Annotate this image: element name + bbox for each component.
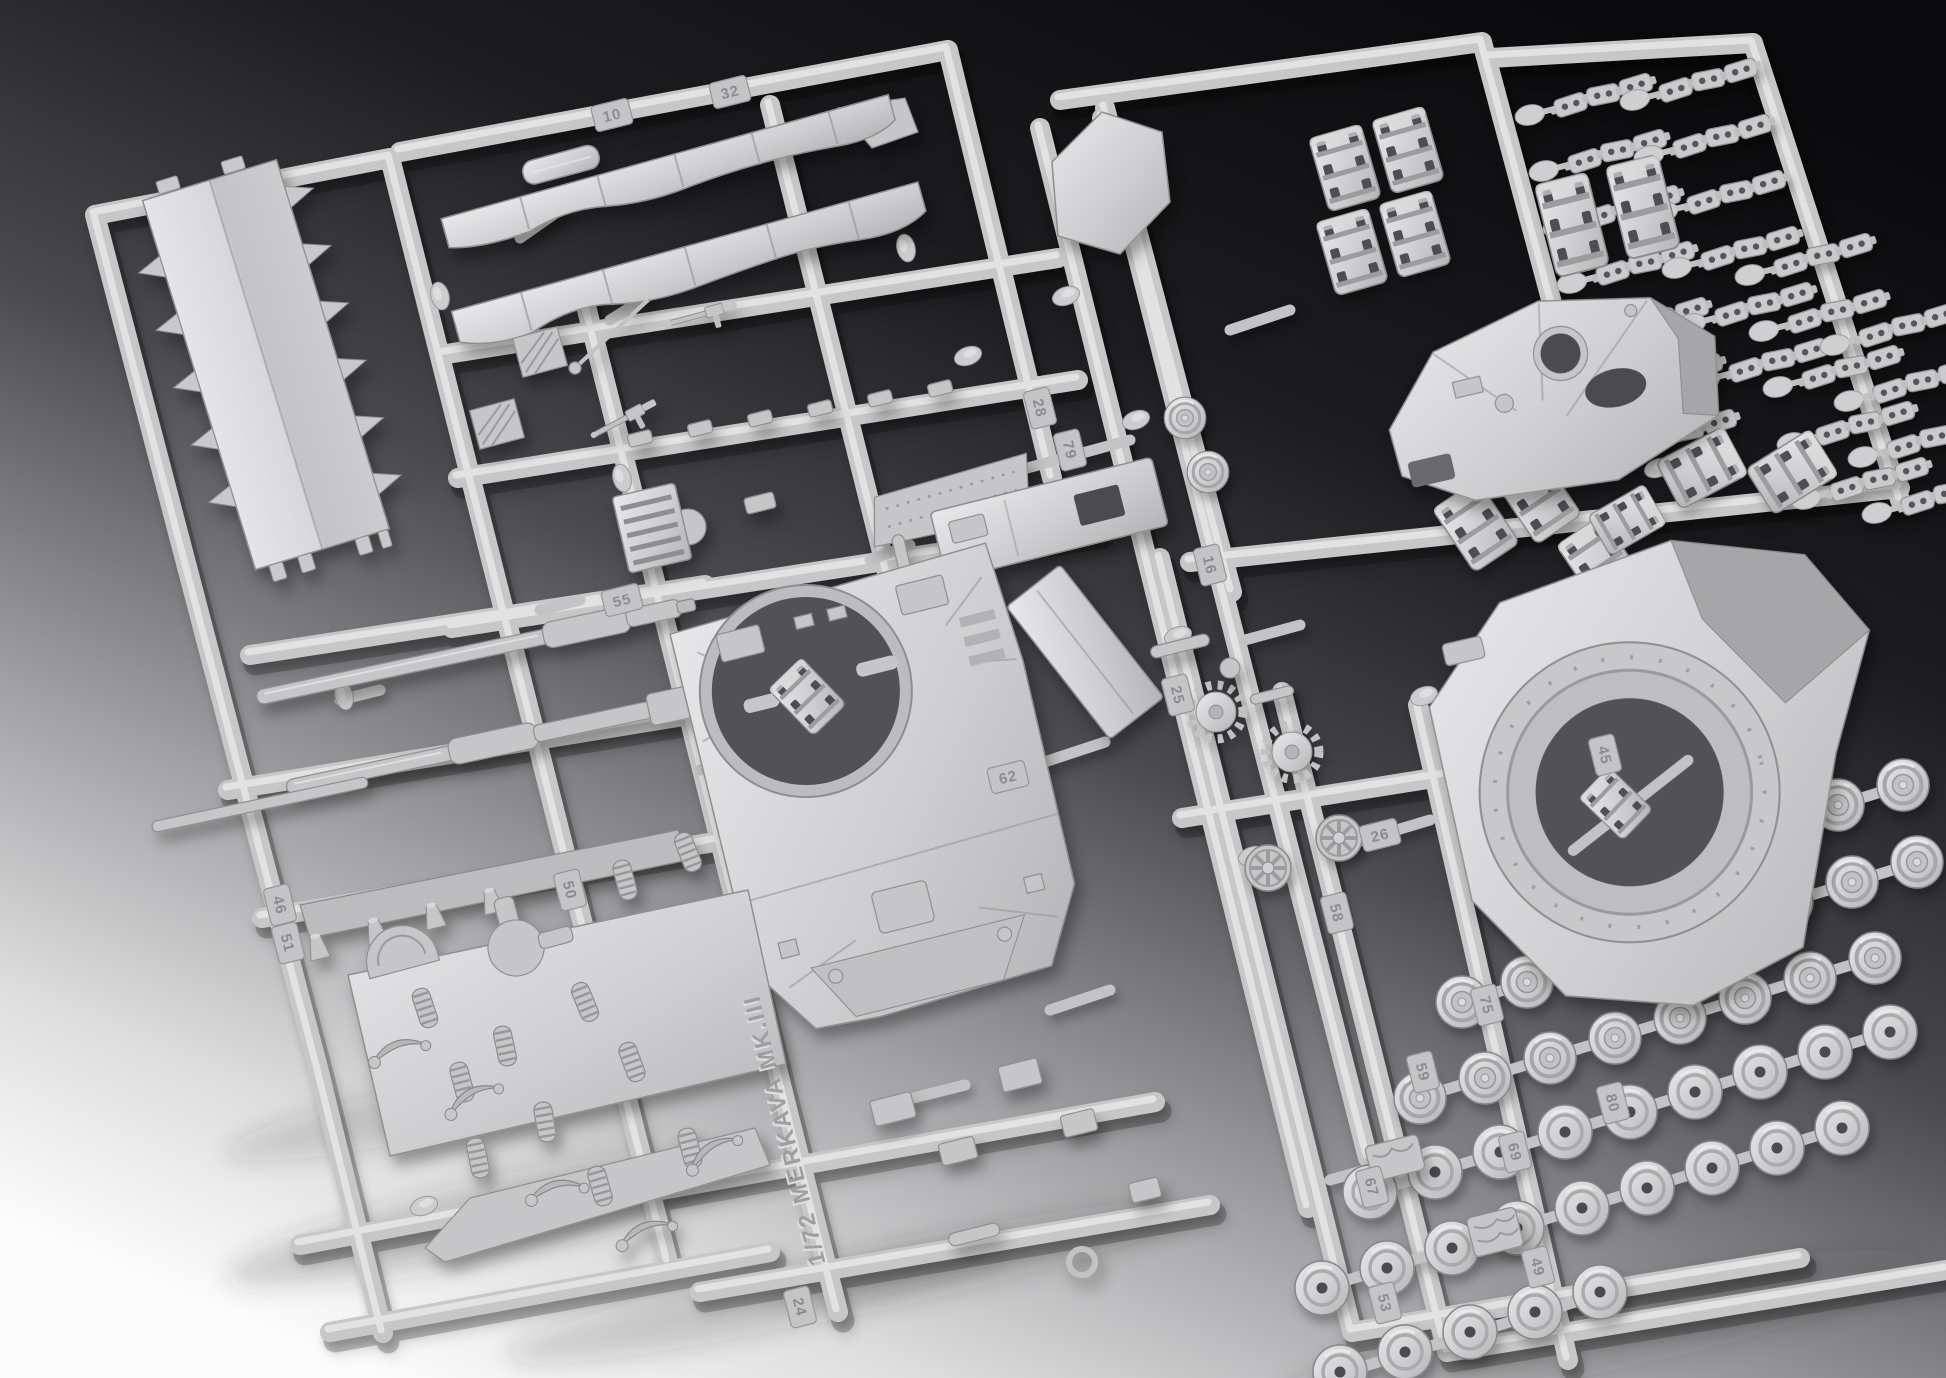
road-wheel [1378,1325,1432,1378]
road-wheel [1826,856,1878,908]
road-wheel [1620,1161,1674,1215]
road-wheel [1668,1065,1722,1119]
road-wheel [1849,932,1901,984]
road-wheel [1877,759,1929,811]
road-wheel [1733,1045,1787,1099]
road-wheel [1750,1121,1804,1175]
road-wheel [1891,836,1943,888]
road-wheel [1685,1141,1739,1195]
spoked-idler-wheel [1316,815,1362,861]
model-kit-sprues-photo: 32 10 28 55 79 16 25 62 26 58 45 75 59 8… [0,0,1946,1378]
road-wheel [1815,1101,1869,1155]
road-wheel [1443,1305,1497,1359]
road-wheel [1538,1105,1592,1159]
road-wheel [1573,1265,1627,1319]
road-wheel [1508,1285,1562,1339]
road-wheel [1589,1012,1641,1064]
road-wheel [1295,1261,1349,1315]
road-wheel [1459,1052,1511,1104]
road-wheel [1187,451,1229,493]
road-wheel [1164,397,1206,439]
road-wheel [1798,1025,1852,1079]
spoked-idler-wheel [1245,845,1291,891]
road-wheel [1784,952,1836,1004]
road-wheel [1863,1005,1917,1059]
road-wheel [1524,1032,1576,1084]
small-part [1220,658,1240,678]
road-wheel [1555,1181,1609,1235]
